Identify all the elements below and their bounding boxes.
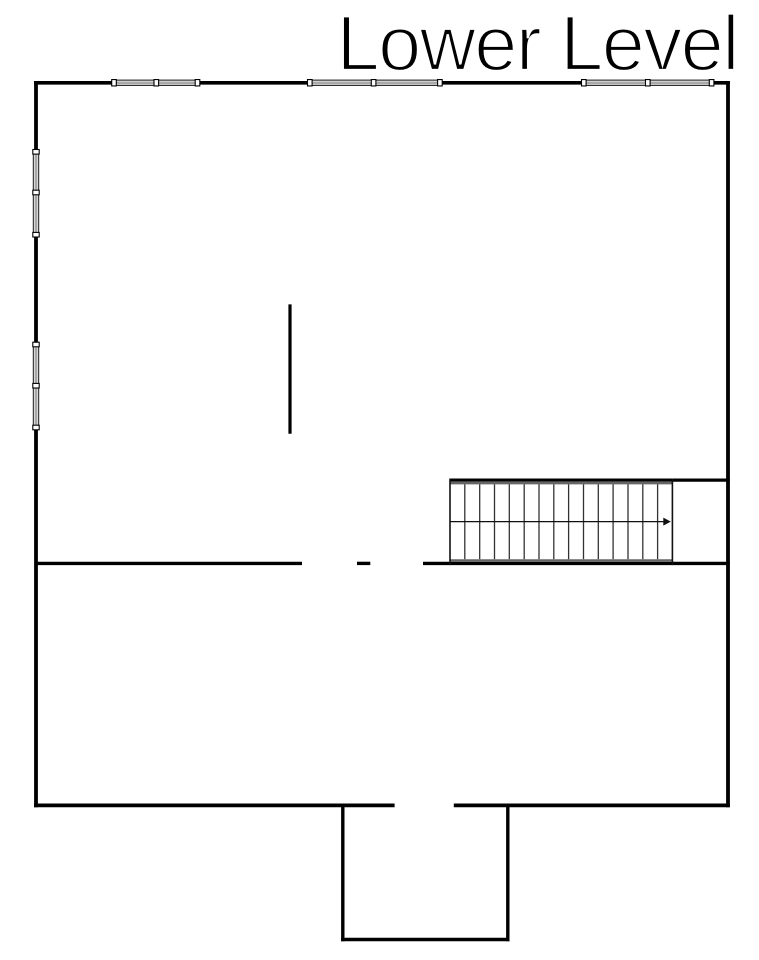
svg-text:Lower Level: Lower Level [337, 1, 740, 87]
